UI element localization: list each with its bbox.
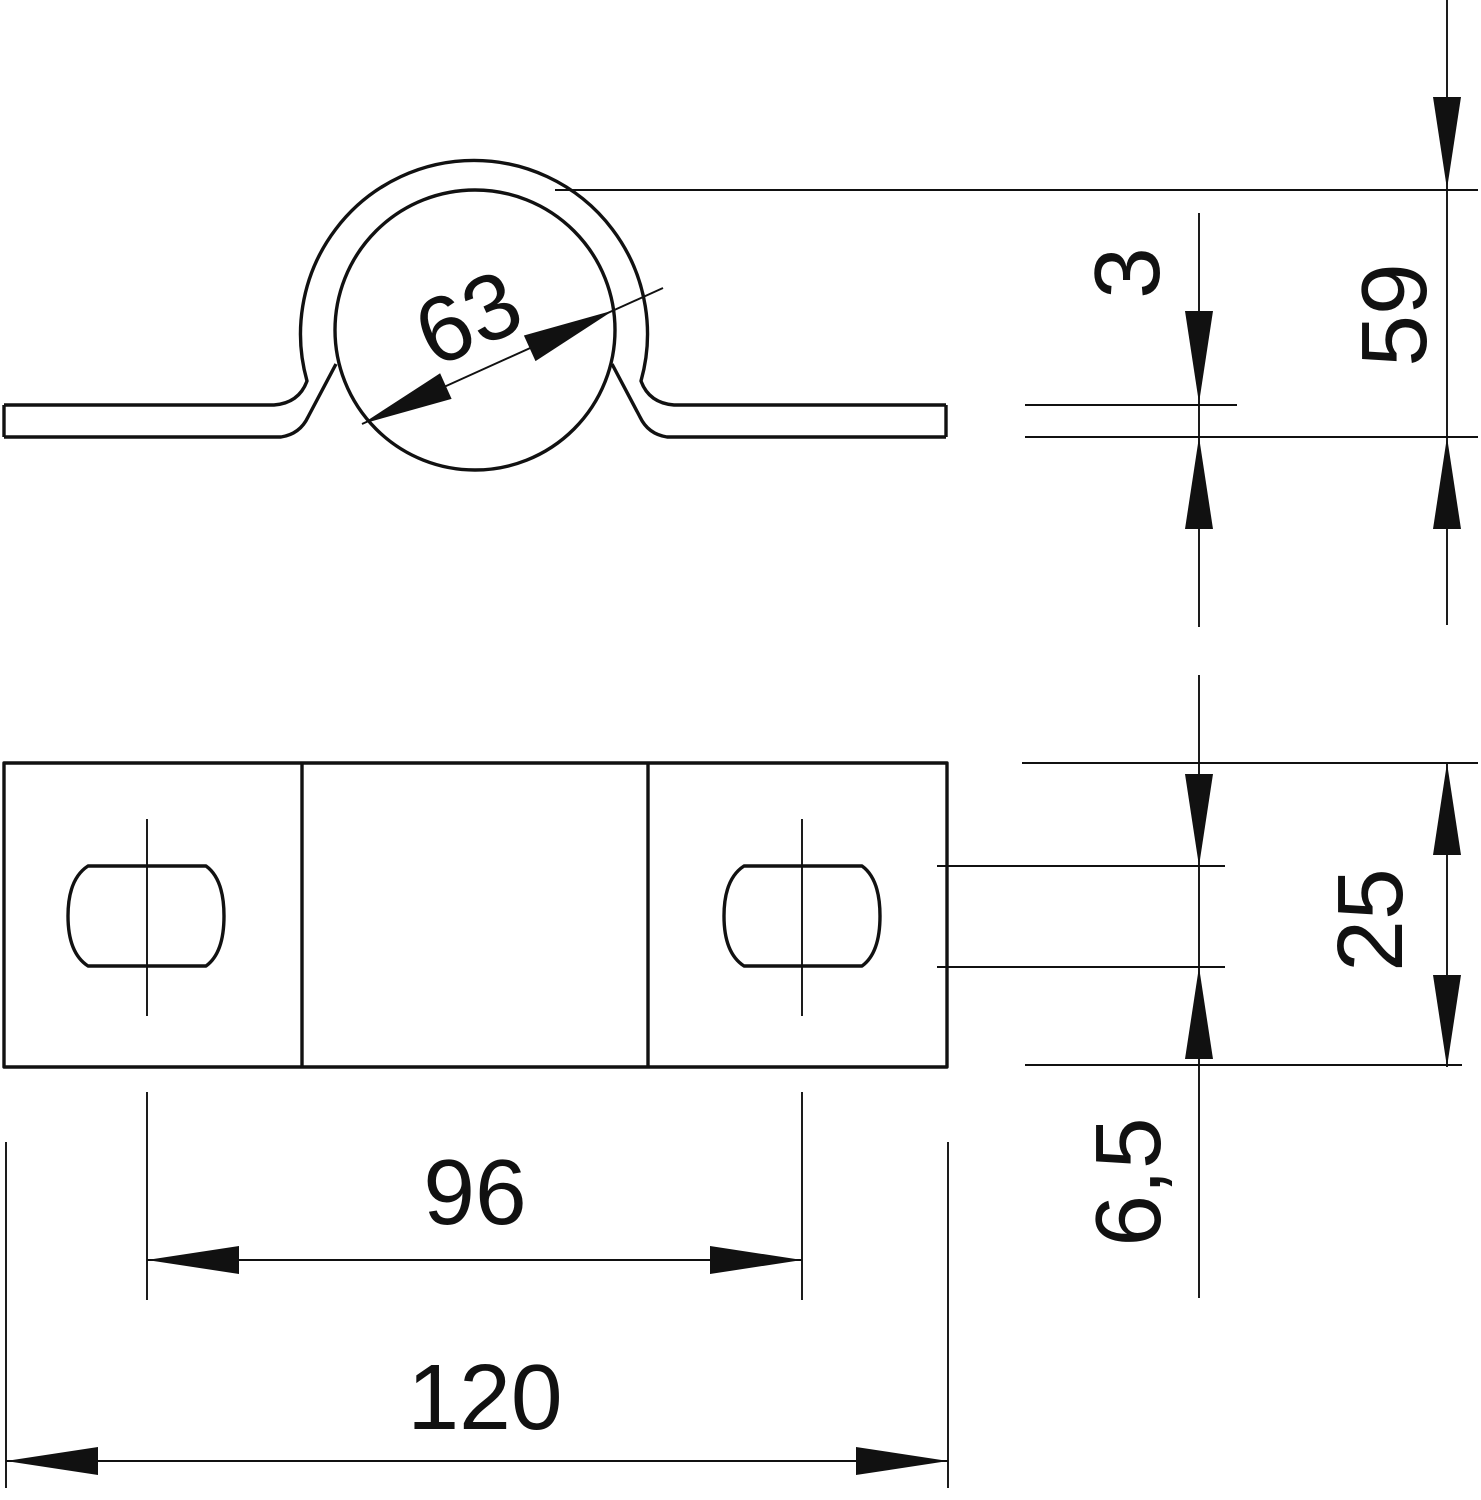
dimension-slot-width: 6,5: [1076, 675, 1213, 1298]
arrowhead-25-bottom: [1433, 975, 1461, 1067]
dimension-label-120: 120: [407, 1345, 562, 1449]
arrowhead-65-top: [1185, 774, 1213, 866]
dimension-clamp-width: 25: [1318, 763, 1461, 1067]
arrowhead-63-upper: [524, 310, 614, 361]
dimension-label-3: 3: [1075, 247, 1179, 299]
dimension-material-thickness: 3: [1075, 213, 1213, 627]
arrowhead-96-right: [710, 1246, 802, 1274]
dimension-label-96: 96: [423, 1140, 526, 1244]
arrowhead-59-bottom: [1433, 437, 1461, 529]
dimension-pipe-diameter: 63: [362, 249, 663, 424]
dimension-slot-spacing: 96: [147, 1092, 802, 1300]
clamp-inner-profile-left: [4, 364, 336, 437]
drawing-svg: 63 3 59: [0, 0, 1481, 1500]
plan-view: [4, 763, 947, 1067]
arrowhead-65-bottom: [1185, 967, 1213, 1059]
arrowhead-25-top: [1433, 763, 1461, 855]
dimension-label-63: 63: [399, 249, 536, 386]
clamp-inner-profile-right: [612, 364, 946, 437]
arrowhead-63-lower: [362, 373, 452, 424]
technical-drawing-canvas: 63 3 59: [0, 0, 1481, 1500]
arrowhead-3-top: [1185, 311, 1213, 403]
slot-left: [68, 866, 224, 966]
arrowhead-59-top: [1433, 97, 1461, 189]
arrowhead-120-right: [856, 1447, 948, 1475]
dimension-overall-height: 59: [1342, 0, 1461, 625]
arrowhead-3-bottom: [1185, 437, 1213, 529]
dimension-label-25: 25: [1318, 868, 1422, 971]
plan-outline: [4, 763, 947, 1067]
arrowhead-120-left: [6, 1447, 98, 1475]
dimension-label-59: 59: [1342, 263, 1446, 366]
dimension-label-65: 6,5: [1076, 1117, 1180, 1246]
arrowhead-96-left: [147, 1246, 239, 1274]
